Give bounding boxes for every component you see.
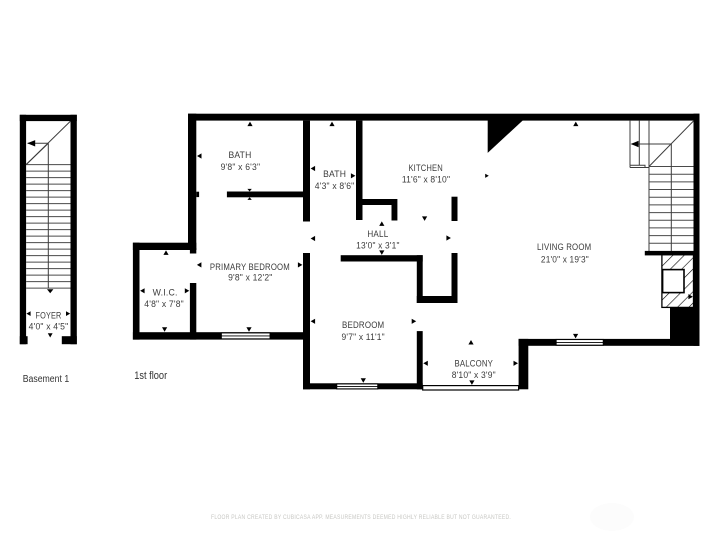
svg-text:9'8" x 12'2": 9'8" x 12'2" (228, 273, 272, 283)
svg-text:11'6" x 8'10": 11'6" x 8'10" (402, 175, 450, 185)
svg-text:W.I.C.: W.I.C. (153, 287, 178, 297)
svg-text:9'7" x 11'1": 9'7" x 11'1" (342, 332, 385, 342)
svg-text:BALCONY: BALCONY (455, 359, 494, 369)
svg-text:FLOOR PLAN CREATED BY CUBICASA: FLOOR PLAN CREATED BY CUBICASA APP. MEAS… (211, 515, 511, 521)
svg-text:BATH: BATH (323, 169, 346, 179)
svg-text:PRIMARY BEDROOM: PRIMARY BEDROOM (210, 262, 290, 272)
svg-text:Basement 1: Basement 1 (23, 374, 69, 385)
svg-text:1st floor: 1st floor (134, 370, 167, 382)
svg-text:HALL: HALL (367, 229, 388, 239)
svg-text:21'0" x 19'3": 21'0" x 19'3" (541, 255, 589, 265)
svg-text:BATH: BATH (229, 150, 252, 160)
svg-text:8'10" x 3'9": 8'10" x 3'9" (452, 370, 496, 380)
svg-text:4'3" x 8'6": 4'3" x 8'6" (315, 181, 355, 191)
svg-text:LIVING ROOM: LIVING ROOM (537, 242, 591, 252)
svg-text:FOYER: FOYER (36, 311, 62, 321)
svg-text:4'0" x 4'5": 4'0" x 4'5" (29, 321, 69, 331)
svg-text:13'0" x 3'1": 13'0" x 3'1" (356, 241, 400, 251)
svg-text:KITCHEN: KITCHEN (408, 163, 443, 173)
svg-text:BEDROOM: BEDROOM (342, 320, 384, 330)
svg-text:4'8" x 7'8": 4'8" x 7'8" (144, 299, 184, 309)
svg-text:9'8" x 6'3": 9'8" x 6'3" (221, 162, 261, 172)
